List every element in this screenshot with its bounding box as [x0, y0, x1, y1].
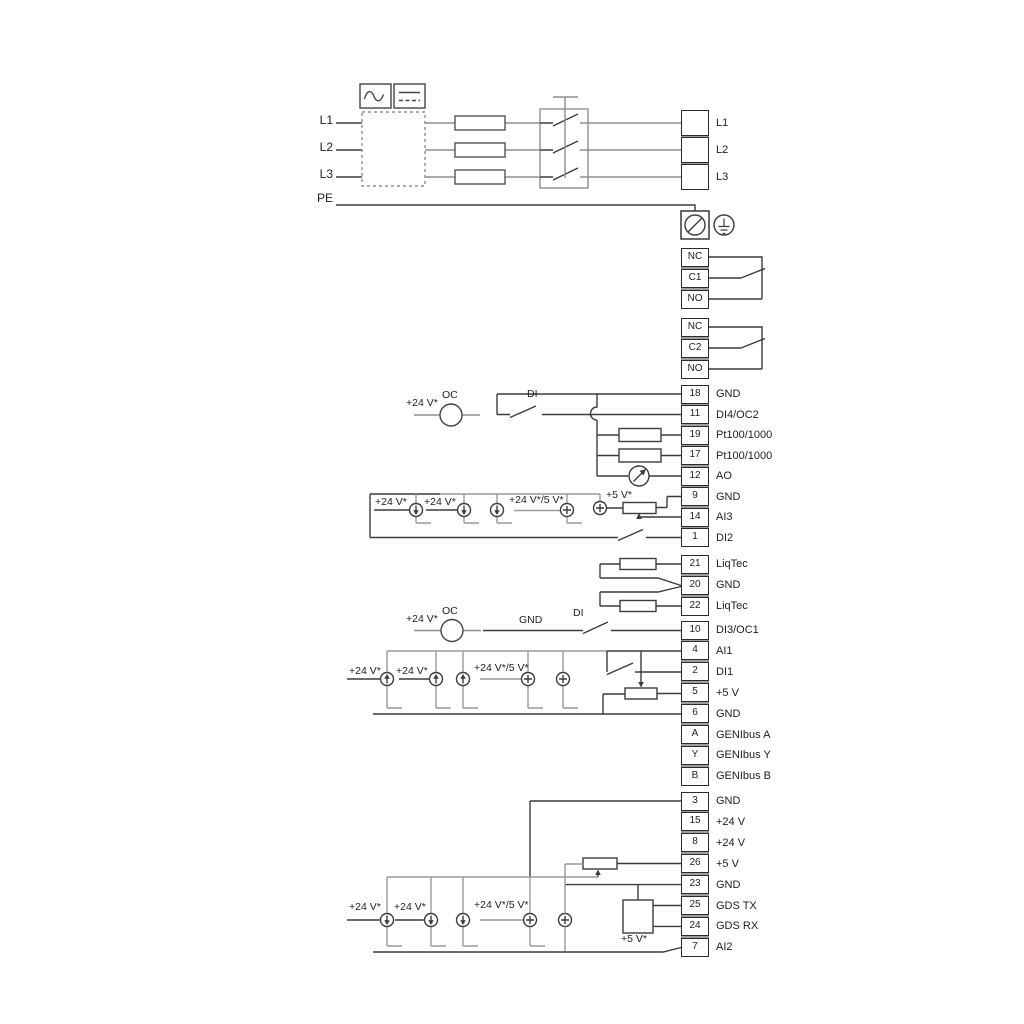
terminal-25: 25 — [681, 896, 709, 915]
terminal-label-14: AI3 — [716, 510, 733, 524]
liqtec-circuit — [600, 559, 681, 612]
power-in-label-L2: L2 — [299, 141, 333, 154]
relay-contact-2 — [709, 327, 765, 369]
annotation-r2_v5: +5 V* — [606, 489, 632, 501]
terminal-label-7: AI2 — [716, 940, 733, 954]
annotation-r3_oc: OC — [442, 605, 458, 617]
terminal-C1: C1 — [681, 269, 709, 288]
terminal-10: 10 — [681, 621, 709, 640]
annotation-r1_v24: +24 V* — [406, 397, 438, 409]
terminal-label-B: GENIbus B — [716, 769, 771, 783]
terminal-8: 8 — [681, 833, 709, 852]
annotation-r1_di: DI — [527, 388, 538, 400]
terminal-label-9: GND — [716, 490, 740, 504]
terminal-3: 3 — [681, 792, 709, 811]
terminal-label-24: GDS RX — [716, 919, 758, 933]
terminal-Y: Y — [681, 746, 709, 765]
annotation-r2_v24a: +24 V* — [375, 496, 407, 508]
ac-symbol — [360, 84, 391, 108]
annotation-r5_v5: +5 V* — [621, 933, 647, 945]
annotation-r3_v24: +24 V* — [406, 613, 438, 625]
terminal-B: B — [681, 767, 709, 786]
potentiometer-symbol — [603, 651, 681, 714]
terminal-17: 17 — [681, 446, 709, 465]
main-switch — [540, 97, 588, 188]
terminal-label-8: +24 V — [716, 836, 745, 850]
terminal-1: 1 — [681, 528, 709, 547]
terminal-5: 5 — [681, 683, 709, 702]
annotation-r5_v245: +24 V*/5 V* — [474, 899, 529, 911]
terminal-label-1: DI2 — [716, 531, 733, 545]
terminal-26: 26 — [681, 854, 709, 873]
resistor-symbol — [597, 429, 681, 463]
terminal-4: 4 — [681, 641, 709, 660]
fuse-symbol — [455, 116, 505, 184]
terminal-NC: NC — [681, 248, 709, 267]
relay-contact-1 — [709, 257, 765, 299]
annotation-r2_v24b: +24 V* — [424, 496, 456, 508]
pe-screw-terminal — [681, 211, 709, 239]
terminal-24: 24 — [681, 917, 709, 936]
terminal-14: 14 — [681, 508, 709, 527]
annotation-r3_gnd: GND — [519, 614, 542, 626]
terminal-label-12: AO — [716, 469, 732, 483]
terminal-9: 9 — [681, 487, 709, 506]
ao-meter-icon — [597, 466, 681, 486]
annotation-r4_v24b: +24 V* — [396, 665, 428, 677]
terminal-7: 7 — [681, 938, 709, 957]
terminal-label-L1: L1 — [716, 116, 728, 130]
annotation-r2_v245: +24 V*/5 V* — [509, 494, 564, 506]
earth-icon — [714, 215, 734, 235]
terminal-18: 18 — [681, 385, 709, 404]
terminal-label-26: +5 V — [716, 857, 739, 871]
terminal-label-11: DI4/OC2 — [716, 408, 759, 422]
terminal-L2 — [681, 137, 709, 163]
terminal-15: 15 — [681, 812, 709, 831]
terminal-label-L2: L2 — [716, 143, 728, 157]
terminal-21: 21 — [681, 555, 709, 574]
terminal-label-L3: L3 — [716, 170, 728, 184]
terminal-label-Y: GENIbus Y — [716, 748, 771, 762]
voltage-source-icon — [522, 673, 570, 686]
dc-symbol — [394, 84, 425, 108]
terminal-label-15: +24 V — [716, 815, 745, 829]
wiring-svg — [0, 0, 1024, 1024]
digital-input-circuit-1 — [497, 394, 681, 476]
terminal-NO: NO — [681, 360, 709, 379]
potentiometer-symbol — [565, 858, 681, 885]
annotation-r4_v24a: +24 V* — [349, 665, 381, 677]
terminal-19: 19 — [681, 426, 709, 445]
terminal-C2: C2 — [681, 339, 709, 358]
terminal-A: A — [681, 725, 709, 744]
terminal-label-18: GND — [716, 387, 740, 401]
annotation-r4_v245: +24 V*/5 V* — [474, 662, 529, 674]
annotation-r3_di: DI — [573, 607, 584, 619]
voltage-source-icon — [561, 502, 607, 517]
terminal-label-2: DI1 — [716, 665, 733, 679]
terminal-2: 2 — [681, 662, 709, 681]
terminal-label-4: AI1 — [716, 644, 733, 658]
terminal-label-3: GND — [716, 794, 740, 808]
terminal-label-21: LiqTec — [716, 557, 748, 571]
terminal-label-10: DI3/OC1 — [716, 623, 759, 637]
voltage-source-icon — [524, 914, 572, 927]
switch-contact — [607, 651, 681, 675]
digital-input-circuit-2 — [483, 622, 681, 634]
wiring-diagram: L1L2L3NCC1NONCC2NO18GND11DI4/OC219Pt100/… — [0, 0, 1024, 1024]
power-in-label-PE: PE — [299, 192, 333, 205]
terminal-22: 22 — [681, 597, 709, 616]
terminal-NC: NC — [681, 318, 709, 337]
terminal-23: 23 — [681, 875, 709, 894]
terminal-11: 11 — [681, 405, 709, 424]
terminal-20: 20 — [681, 576, 709, 595]
terminal-label-23: GND — [716, 878, 740, 892]
emc-filter-box — [362, 112, 425, 186]
terminal-label-17: Pt100/1000 — [716, 449, 772, 463]
terminal-label-19: Pt100/1000 — [716, 428, 772, 442]
terminal-L1 — [681, 110, 709, 136]
annotation-r5_v24b: +24 V* — [394, 901, 426, 913]
power-in-label-L3: L3 — [299, 168, 333, 181]
terminal-L3 — [681, 164, 709, 190]
terminal-label-A: GENIbus A — [716, 728, 770, 742]
terminal-label-6: GND — [716, 707, 740, 721]
annotation-r5_v24a: +24 V* — [349, 901, 381, 913]
sensor-options-ai1 — [347, 651, 681, 714]
terminal-6: 6 — [681, 704, 709, 723]
power-lines — [336, 123, 695, 211]
terminal-label-5: +5 V — [716, 686, 739, 700]
terminal-label-22: LiqTec — [716, 599, 748, 613]
annotation-r1_oc: OC — [442, 389, 458, 401]
terminal-NO: NO — [681, 290, 709, 309]
terminal-label-20: GND — [716, 578, 740, 592]
terminal-12: 12 — [681, 467, 709, 486]
current-source-icon — [381, 914, 470, 927]
terminal-label-25: GDS TX — [716, 899, 757, 913]
sensor-options-ai2 — [347, 801, 681, 952]
power-in-label-L1: L1 — [299, 114, 333, 127]
gds-sensor-box — [623, 885, 681, 933]
